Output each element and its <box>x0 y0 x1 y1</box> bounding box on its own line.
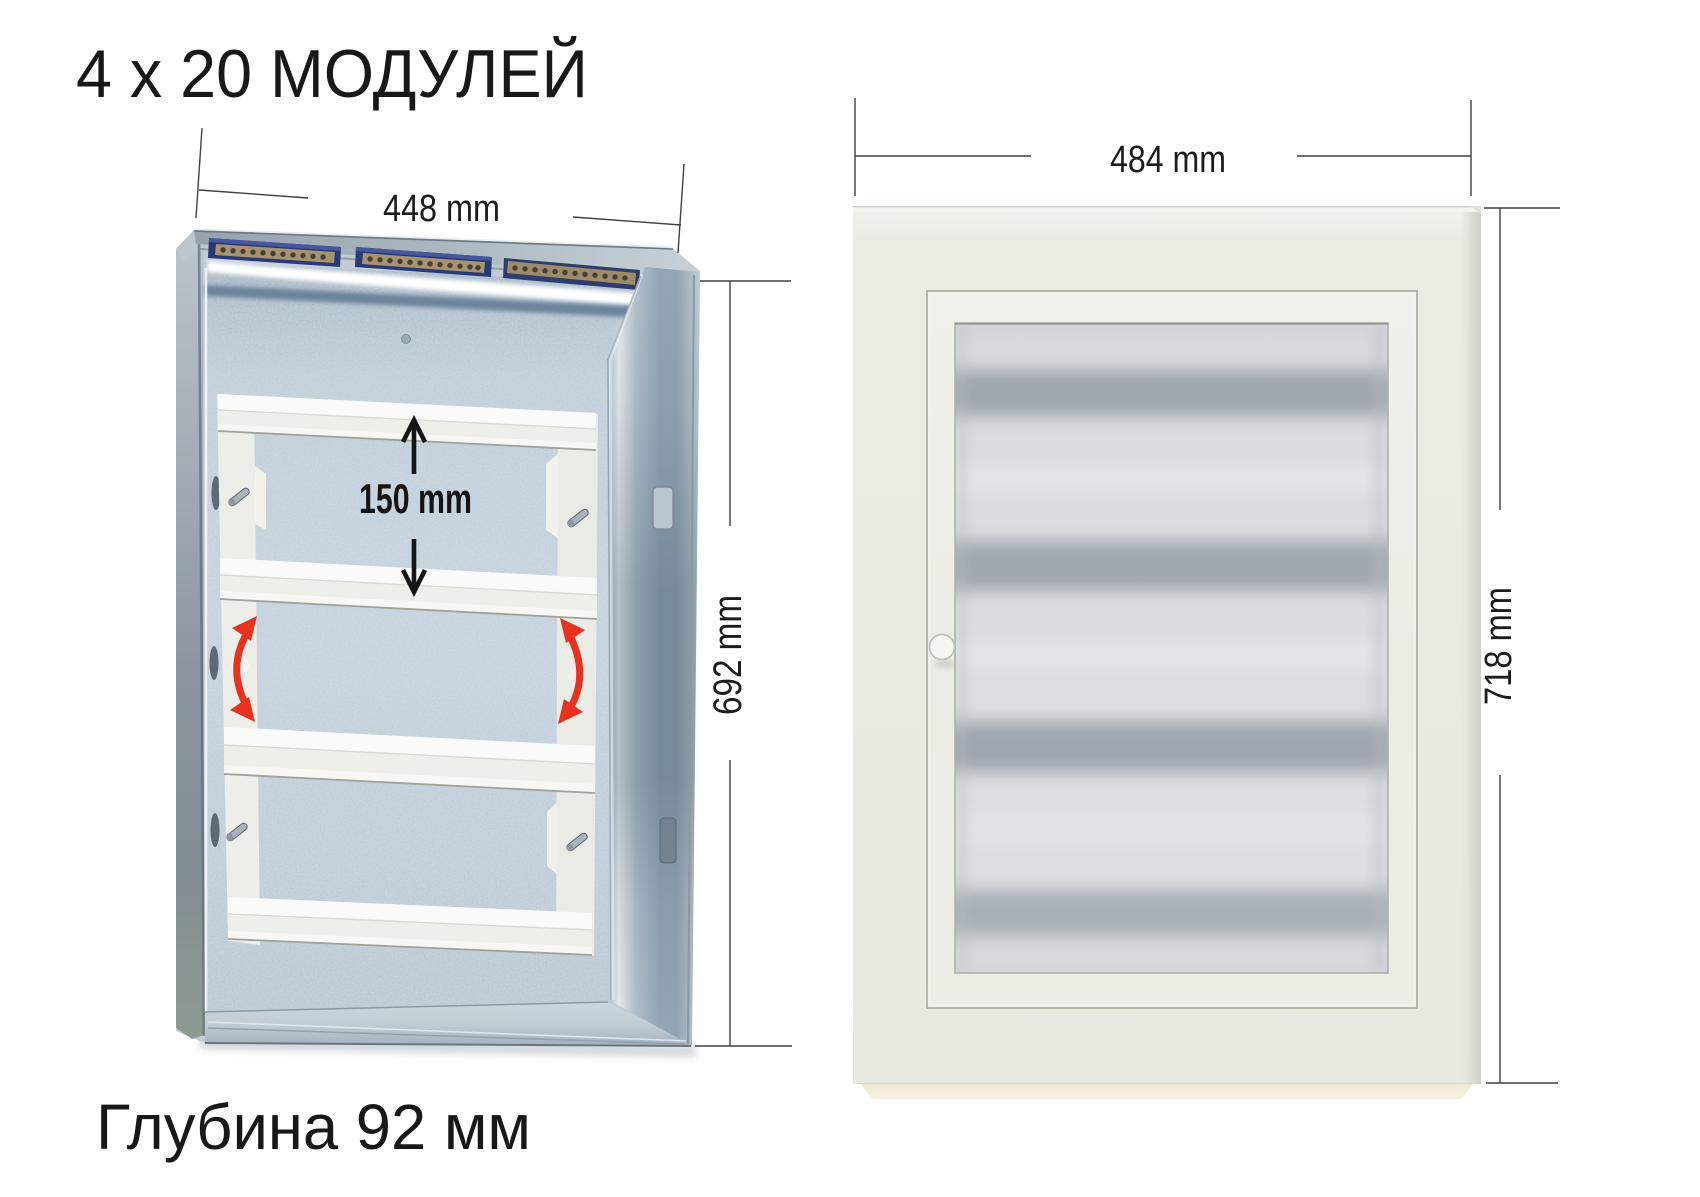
svg-text:150 mm: 150 mm <box>359 475 472 522</box>
svg-text:718 mm: 718 mm <box>1478 587 1520 705</box>
svg-text:692 mm: 692 mm <box>706 595 750 715</box>
svg-text:448 mm: 448 mm <box>383 188 500 230</box>
svg-text:Глубина 92 мм: Глубина 92 мм <box>96 1091 531 1163</box>
svg-text:484 mm: 484 mm <box>1110 139 1226 181</box>
svg-text:4 x 20 МОДУЛЕЙ: 4 x 20 МОДУЛЕЙ <box>76 35 588 112</box>
